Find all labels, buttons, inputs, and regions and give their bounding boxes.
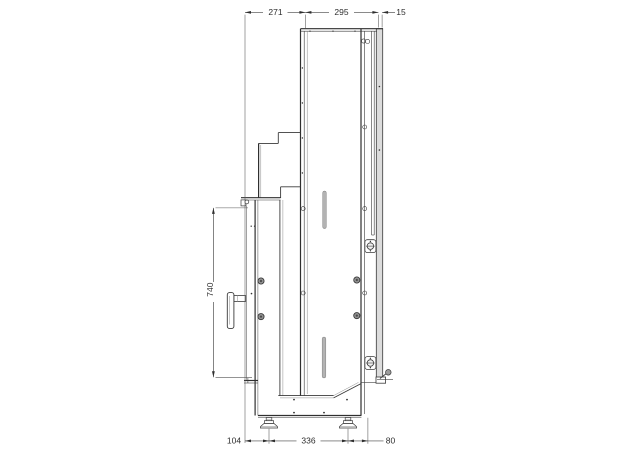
upper-step-profile	[259, 133, 301, 198]
cam-lock-upper	[365, 240, 376, 253]
door-handle	[227, 293, 246, 329]
technical-drawing-page: 271 295 15 740 104 336 80	[0, 0, 624, 460]
dim-15-label: 15	[396, 7, 406, 17]
leveling-foot-right	[339, 418, 356, 429]
base-assembly	[258, 382, 376, 428]
rear-panel	[372, 29, 383, 383]
cam-lock-lower	[365, 357, 376, 370]
door-bolt-knobs	[258, 277, 360, 320]
dim-740-label: 740	[205, 282, 215, 296]
dim-336-label: 336	[301, 436, 315, 446]
dim-80-label: 80	[386, 436, 396, 446]
dimension-left: 740	[205, 208, 215, 377]
dimension-bottom: 104 336 80	[227, 436, 396, 446]
panel-screws	[301, 39, 370, 295]
leveling-foot-left	[260, 418, 277, 429]
door-hinge-top	[241, 198, 281, 206]
front-door	[227, 198, 283, 416]
dim-271-label: 271	[268, 7, 282, 17]
dim-104-label: 104	[227, 436, 241, 446]
mounting-slot-lower	[322, 337, 326, 378]
mounting-slot-upper	[323, 191, 327, 229]
dim-295-label: 295	[334, 7, 348, 17]
technical-drawing: 271 295 15 740 104 336 80	[0, 0, 624, 460]
